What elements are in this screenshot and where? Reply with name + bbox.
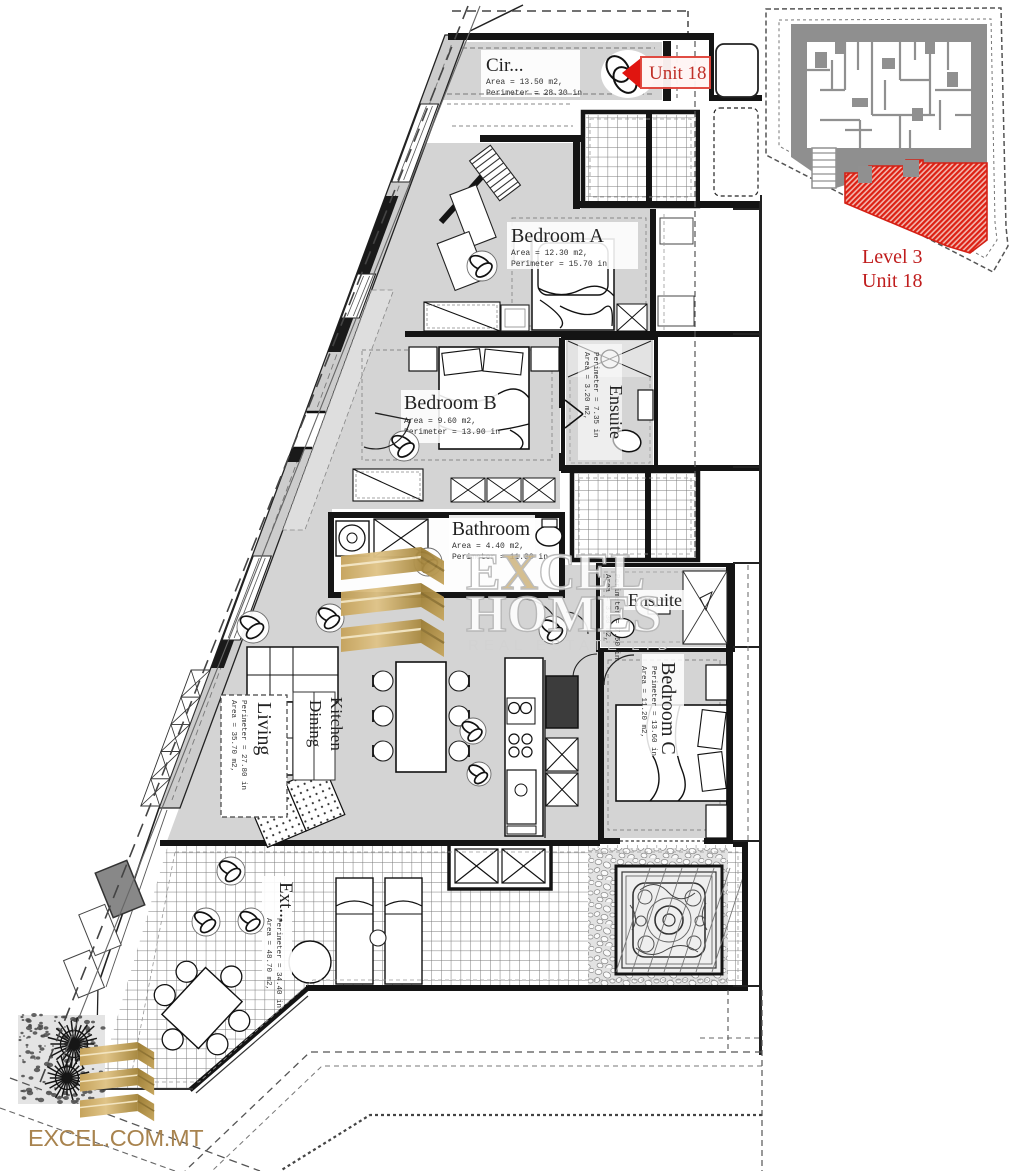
svg-text:Unit 18: Unit 18 bbox=[649, 63, 707, 84]
svg-text:Level 3: Level 3 bbox=[862, 246, 923, 268]
svg-text:Ensuite: Ensuite bbox=[606, 385, 626, 439]
svg-text:Area = 12.30 m2,: Area = 12.30 m2, bbox=[511, 249, 588, 258]
svg-text:Area = 35.70 m2,: Area = 35.70 m2, bbox=[229, 700, 237, 772]
svg-text:Bedroom A: Bedroom A bbox=[511, 225, 604, 247]
svg-text:REAL ESTATE LTD: REAL ESTATE LTD bbox=[468, 637, 673, 654]
svg-text:Bedroom B: Bedroom B bbox=[404, 392, 497, 414]
svg-text:Bedroom C: Bedroom C bbox=[657, 662, 679, 755]
svg-text:Area = 13.50 m2,: Area = 13.50 m2, bbox=[486, 78, 563, 87]
svg-text:Perimeter = 13.60 in: Perimeter = 13.60 in bbox=[649, 666, 657, 756]
svg-text:Bathroom: Bathroom bbox=[452, 519, 530, 540]
svg-text:Perimeter = 27.80 in: Perimeter = 27.80 in bbox=[239, 700, 247, 790]
svg-text:Perimeter = 13.90 in: Perimeter = 13.90 in bbox=[404, 428, 500, 437]
svg-text:Area = 9.60 m2,: Area = 9.60 m2, bbox=[404, 417, 476, 426]
svg-text:Ext...: Ext... bbox=[275, 882, 296, 923]
svg-text:Dining: Dining bbox=[306, 700, 325, 748]
svg-text:Cir...: Cir... bbox=[486, 55, 523, 76]
svg-text:Kitchen: Kitchen bbox=[327, 697, 346, 751]
svg-text:Area = 3.20 m2,: Area = 3.20 m2, bbox=[582, 352, 590, 420]
svg-text:Perimeter = 28.30 in: Perimeter = 28.30 in bbox=[486, 89, 582, 98]
svg-text:EXCEL.COM.MT: EXCEL.COM.MT bbox=[28, 1125, 203, 1151]
svg-text:Perimeter = 7.35 in: Perimeter = 7.35 in bbox=[591, 352, 599, 438]
svg-text:HOMES: HOMES bbox=[466, 586, 662, 643]
svg-text:Area = 48.70 m2,: Area = 48.70 m2, bbox=[264, 918, 272, 990]
svg-text:Perimeter = 34.40 in: Perimeter = 34.40 in bbox=[274, 918, 282, 1008]
svg-text:Area = 11.20 m2,: Area = 11.20 m2, bbox=[639, 666, 647, 738]
svg-text:Living: Living bbox=[253, 702, 275, 755]
svg-text:Unit 18: Unit 18 bbox=[862, 270, 923, 292]
svg-text:Perimeter = 15.70 in: Perimeter = 15.70 in bbox=[511, 260, 607, 269]
